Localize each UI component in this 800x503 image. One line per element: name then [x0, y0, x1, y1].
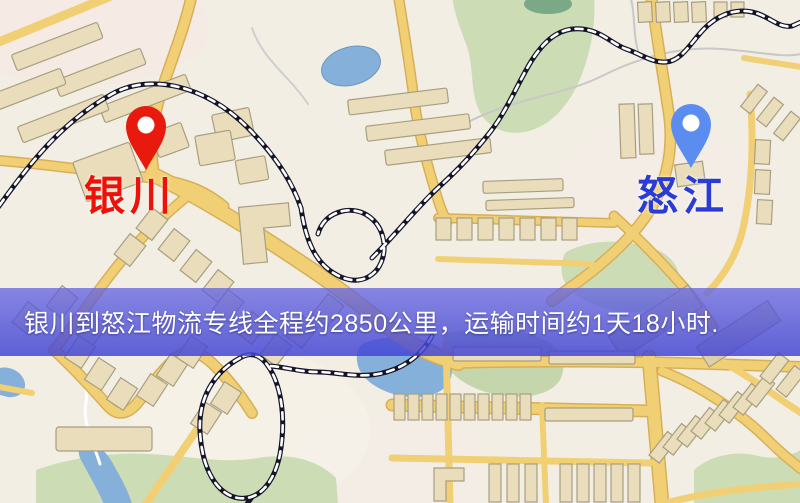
destination-pin-hole — [683, 115, 700, 132]
destination-city-label: 怒江 — [637, 176, 729, 217]
origin-pin[interactable] — [121, 102, 171, 172]
origin-city-label: 银川 — [84, 176, 176, 217]
destination-pin-icon — [671, 104, 711, 168]
destination-pin[interactable] — [666, 100, 716, 170]
route-info-banner: 银川到怒江物流专线全程约2850公里，运输时间约1天18小时. — [0, 288, 800, 356]
route-info-text: 银川到怒江物流专线全程约2850公里，运输时间约1天18小时. — [24, 304, 719, 340]
origin-pin-hole — [138, 117, 155, 134]
map-canvas[interactable] — [0, 0, 800, 503]
map-screenshot: 银川到怒江物流专线全程约2850公里，运输时间约1天18小时. 银川 怒江 — [0, 0, 800, 503]
origin-pin-icon — [126, 106, 166, 170]
